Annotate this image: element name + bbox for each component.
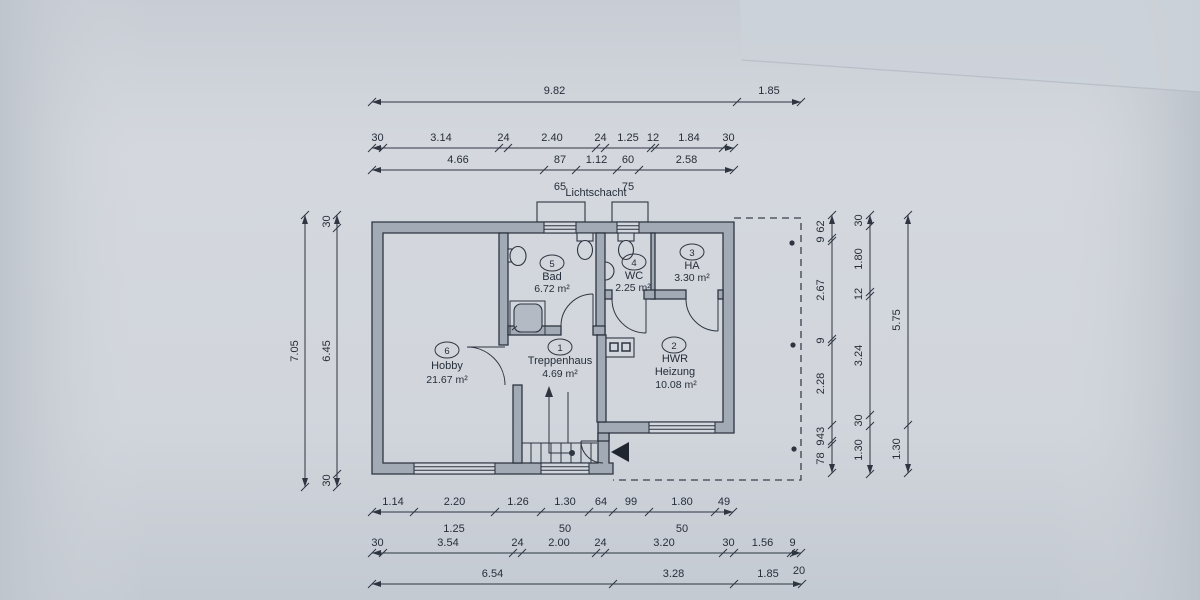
- dimension-label: 3.20: [653, 537, 674, 549]
- dimension-label: 60: [622, 154, 634, 166]
- dimension-sublabel: 20: [793, 565, 805, 577]
- room-name: Bad: [542, 271, 562, 283]
- dimension-sublabel: 75: [622, 181, 634, 193]
- dimension-label: 9: [815, 439, 827, 445]
- dimension-label: 9: [815, 236, 827, 242]
- dimension-label: 3.24: [853, 345, 865, 366]
- wall-wc-ha: [651, 233, 655, 299]
- dimension-sublabel: 65: [554, 181, 566, 193]
- room-area: 10.08 m²: [655, 379, 697, 391]
- floor-plan-svg: Lichtschacht: [0, 0, 1200, 600]
- room-area: 3.30 m²: [674, 272, 710, 284]
- dimension-label: 30: [722, 537, 734, 549]
- dimension-label: 1.84: [678, 132, 699, 144]
- dimension-label: 24: [511, 537, 523, 549]
- dimension-label: 1.30: [554, 496, 575, 508]
- dimension-label: 3.28: [663, 568, 684, 580]
- window-hobby-small: [541, 463, 589, 474]
- dimension-label: 24: [594, 132, 606, 144]
- dimension-label: 62: [815, 220, 827, 232]
- dimension-label: 64: [595, 496, 607, 508]
- post-dot: [791, 446, 796, 451]
- wall-hobby-stairs: [513, 385, 522, 463]
- lichtschacht-box: [612, 202, 648, 222]
- room-name: HA: [684, 260, 700, 272]
- dimension-label: 1.80: [853, 248, 865, 269]
- dimension-label: 7.05: [289, 340, 301, 361]
- dimension-label: 43: [815, 427, 827, 439]
- dimension-label: 30: [371, 537, 383, 549]
- room-area: 4.69 m²: [542, 368, 578, 380]
- post-dot: [790, 342, 795, 347]
- post-dot: [789, 240, 794, 245]
- dimension-label: 1.25: [617, 132, 638, 144]
- wall-bad-wc: [596, 233, 605, 335]
- room-number: 2: [671, 341, 676, 352]
- dimension-label: 6.45: [321, 340, 333, 361]
- lichtschacht-label: Lichtschacht: [565, 187, 626, 199]
- dimension-label: 6.54: [482, 568, 503, 580]
- toilet-bad-icon: [577, 233, 593, 260]
- dimension-label: 1.85: [757, 568, 778, 580]
- dimension-label: 12: [647, 132, 659, 144]
- dimension-label: 5.75: [891, 309, 903, 330]
- dimension-label: 24: [594, 537, 606, 549]
- room-number: 3: [689, 248, 694, 259]
- room-area: 6.72 m²: [534, 283, 570, 295]
- room-number: 5: [549, 259, 554, 270]
- dimension-label: 12: [853, 288, 865, 300]
- dimension-label: 30: [321, 474, 333, 486]
- stair-walk-start-dot: [569, 450, 575, 456]
- room-number: 1: [557, 343, 562, 354]
- dimension-label: 1.56: [752, 537, 773, 549]
- dimension-label: 9: [789, 537, 795, 549]
- dim-group-bottom_row2_sub: 20: [793, 565, 805, 577]
- dimension-label: 30: [853, 214, 865, 226]
- dimension-label: 3.14: [430, 132, 451, 144]
- dimension-label: 2.40: [541, 132, 562, 144]
- wall-hobby-bad: [499, 233, 508, 345]
- dimension-label: 87: [554, 154, 566, 166]
- dimension-label: 2.67: [815, 279, 827, 300]
- dimension-sublabel: 50: [676, 523, 688, 535]
- meter-box-icon: [606, 338, 634, 357]
- dimension-label: 1.30: [891, 438, 903, 459]
- dimension-label: 2.00: [548, 537, 569, 549]
- dimension-label: 2.28: [815, 373, 827, 394]
- wall-entrance-stub: [598, 433, 609, 441]
- dimension-sublabel: 50: [559, 523, 571, 535]
- dimension-label: 30: [371, 132, 383, 144]
- floor-plan-photo: Lichtschacht: [0, 0, 1200, 600]
- dimension-label: 1.12: [586, 154, 607, 166]
- room-name: Hobby: [431, 360, 463, 372]
- room-name: Treppenhaus: [528, 355, 593, 367]
- room-area: 2.25 m²: [615, 282, 651, 294]
- dimension-label: 99: [625, 496, 637, 508]
- dimension-label: 78: [815, 452, 827, 464]
- dimension-label: 1.26: [507, 496, 528, 508]
- room-number: 4: [631, 258, 636, 269]
- dimension-label: 3.54: [437, 537, 458, 549]
- wall-ha-bottom: [655, 290, 686, 299]
- room-name: HWR: [662, 353, 688, 365]
- dimension-label: 30: [722, 132, 734, 144]
- dimension-label: 24: [497, 132, 509, 144]
- dimension-label: 9: [815, 337, 827, 343]
- dimension-label: 49: [718, 496, 730, 508]
- dimension-sublabel: 1.25: [443, 523, 464, 535]
- dimension-label: 2.20: [444, 496, 465, 508]
- dimension-label: 4.66: [447, 154, 468, 166]
- dimension-label: 1.85: [758, 85, 779, 97]
- dimension-label: 1.14: [382, 496, 403, 508]
- dimension-label: 9.82: [544, 85, 565, 97]
- dimension-label: 30: [853, 414, 865, 426]
- room-name-2: Heizung: [655, 366, 695, 378]
- dimension-label: 30: [321, 215, 333, 227]
- dimension-label: 2.58: [676, 154, 697, 166]
- room-area: 21.67 m²: [426, 374, 468, 386]
- wall-ha-bottom: [718, 290, 723, 299]
- wall-stairs-hwr: [597, 335, 606, 422]
- room-name: WC: [625, 270, 643, 282]
- window-top-wc: [617, 222, 639, 233]
- window-top-bad: [544, 222, 576, 233]
- wall-wc-bottom: [605, 290, 612, 299]
- room-number: 6: [444, 346, 449, 357]
- lichtschacht-box: [537, 202, 585, 222]
- window-hobby-large: [414, 463, 495, 474]
- dimension-label: 1.80: [671, 496, 692, 508]
- dimension-label: 1.30: [853, 439, 865, 460]
- window-hwr: [649, 422, 715, 433]
- wall-bad-bottom: [593, 326, 605, 335]
